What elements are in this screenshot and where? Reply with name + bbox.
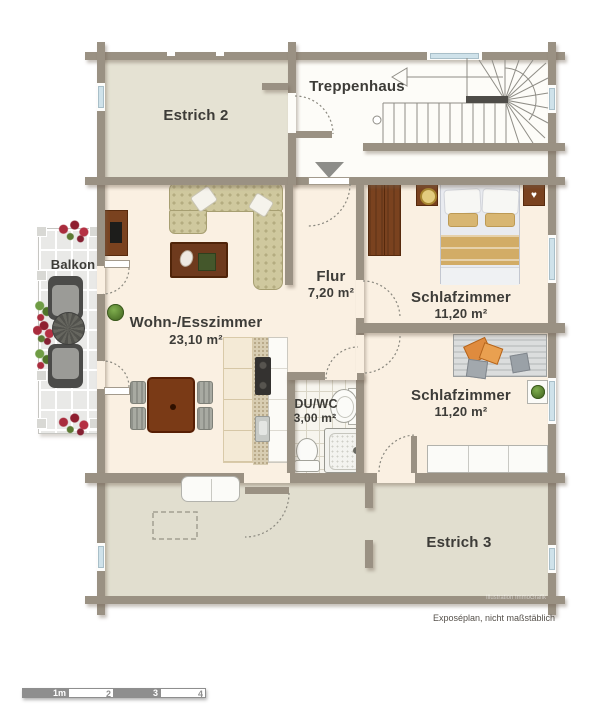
desk: [453, 334, 547, 377]
bench-sideboard: [427, 445, 548, 473]
door-opening-estrich2: [288, 93, 296, 133]
door-leaf-estrich3: [245, 487, 289, 494]
desk-chair: [466, 359, 488, 380]
hall-dresser: [181, 476, 240, 502]
label-schlafzimmer-sued-area: 11,20 m²: [435, 404, 488, 419]
door-opening-balcony-2: [97, 361, 105, 389]
wall-stairwell: [363, 143, 565, 151]
label-schlafzimmer-nord: Schlafzimmer: [411, 289, 511, 306]
toilet-tank: [294, 460, 320, 472]
door-leaf-balcony-2: [104, 387, 130, 395]
kitchen-cabinets: [223, 337, 253, 463]
window-estrich2: [97, 83, 105, 111]
sofa-side: [253, 210, 283, 290]
label-flur-area: 7,20 m²: [308, 285, 354, 300]
bedside-lamp: [420, 188, 437, 205]
desk-chair: [510, 353, 531, 374]
window-stairhall-north: [427, 52, 482, 60]
wall-living-hall: [285, 185, 293, 285]
balcony-chair: [48, 344, 83, 388]
flower-box: [56, 220, 90, 243]
bed-pillow: [481, 188, 519, 215]
scale-bar: 1m 2 3 4: [22, 688, 206, 698]
door-stairhall-hall: [308, 177, 350, 185]
wall-notch: [216, 52, 224, 56]
scale-segment: 2: [68, 688, 114, 698]
wall-north: [85, 52, 565, 60]
nightstand: ♥: [523, 184, 545, 206]
wall-between-bedrooms: [356, 323, 565, 333]
label-wohnesszimmer: Wohn-/Esszimmer: [130, 314, 263, 331]
scale-segment: 1m: [22, 688, 68, 698]
label-estrich3: Estrich 3: [426, 534, 491, 551]
dining-chair: [130, 407, 146, 430]
table-knob: [170, 404, 176, 410]
scale-segment: 3: [114, 688, 160, 698]
plant: [531, 385, 545, 399]
table-figurine: [178, 248, 196, 268]
bed-foot: [441, 267, 519, 285]
sofa-chaise: [169, 210, 207, 234]
window-estrich3-east: [548, 545, 556, 573]
wall-notch: [167, 52, 175, 56]
wall-west: [97, 42, 105, 615]
kitchen-sink: [255, 416, 270, 442]
potted-plant: [107, 304, 124, 321]
window-stairhall-east: [548, 85, 556, 113]
room-treppenhaus-floor: [294, 58, 550, 179]
dining-table: [147, 377, 195, 433]
scale-segment: 4: [160, 688, 206, 698]
window-bedroom-north: [548, 235, 556, 283]
double-bed: [440, 184, 520, 284]
floorplan: ♥: [0, 0, 600, 713]
dining-chair: [197, 381, 213, 404]
label-estrich2: Estrich 2: [163, 107, 228, 124]
door-opening-bath: [325, 372, 357, 380]
wall-stub-estrich3: [365, 540, 373, 568]
coffee-table: [170, 242, 228, 278]
balcony-post: [36, 226, 47, 237]
balcony-table: [52, 312, 85, 345]
sink-basin: [259, 421, 267, 435]
label-schlafzimmer-sued: Schlafzimmer: [411, 387, 511, 404]
door-leaf-bedroom-corridor: [411, 436, 417, 473]
bed-pillow: [443, 188, 481, 215]
label-balkon: Balkon: [51, 257, 96, 272]
wardrobe-divider: [384, 185, 385, 255]
window-estrich3-west: [97, 543, 105, 571]
kitchen-units: [268, 337, 288, 463]
wall-bath-west: [287, 372, 295, 478]
wall-estrich3-north: [85, 473, 565, 483]
wall-stub-estrich3: [365, 483, 373, 508]
tv-screen: [110, 222, 122, 243]
door-opening-bedroom-corridor: [377, 473, 415, 483]
nightstand: [416, 184, 438, 206]
balcony-plant: [33, 320, 53, 346]
dining-chair: [197, 407, 213, 430]
bed-cushion: [485, 213, 515, 227]
footnote-disclaimer: Exposéplan, nicht maßstäblich: [380, 613, 555, 623]
label-duwc: DU/WC: [294, 397, 337, 411]
door-opening-balcony-1: [97, 266, 105, 294]
wardrobe: [368, 184, 401, 256]
bed-throw: [441, 235, 519, 265]
label-treppenhaus: Treppenhaus: [309, 78, 405, 95]
door-opening-estrich3: [244, 473, 290, 483]
label-duwc-area: 3,00 m²: [294, 411, 337, 425]
window-bedroom-south: [548, 378, 556, 424]
side-table: [527, 380, 548, 404]
balcony-post: [36, 418, 47, 429]
dining-chair: [130, 381, 146, 404]
label-schlafzimmer-nord-area: 11,20 m²: [435, 306, 488, 321]
flower-box: [56, 413, 90, 436]
door-leaf-estrich2: [296, 131, 332, 138]
door-opening-bedroom-south: [356, 335, 364, 373]
cooktop: [255, 357, 271, 395]
label-flur: Flur: [316, 268, 345, 285]
door-opening-bedroom-north: [356, 280, 364, 318]
balcony-post: [36, 270, 47, 281]
label-wohnesszimmer-area: 23,10 m²: [169, 332, 223, 347]
table-decor: [198, 253, 216, 271]
tv-sideboard: [104, 210, 128, 256]
wall-stub-doorway: [262, 83, 288, 90]
illustrator-watermark: Illustration ImmoGrafik: [458, 595, 546, 601]
door-leaf-balcony-1: [104, 260, 130, 268]
bed-cushion: [448, 213, 478, 227]
